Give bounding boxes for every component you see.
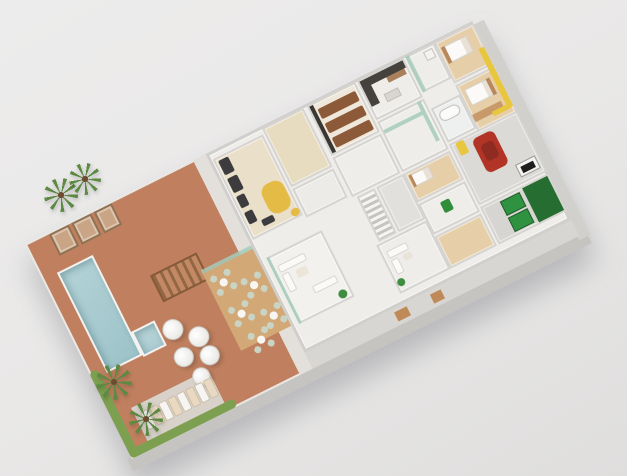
palm-tree-icon <box>129 402 163 436</box>
palm-tree-icon <box>96 364 132 400</box>
palm-tree-icon <box>69 163 101 195</box>
canvas-background <box>0 0 627 476</box>
